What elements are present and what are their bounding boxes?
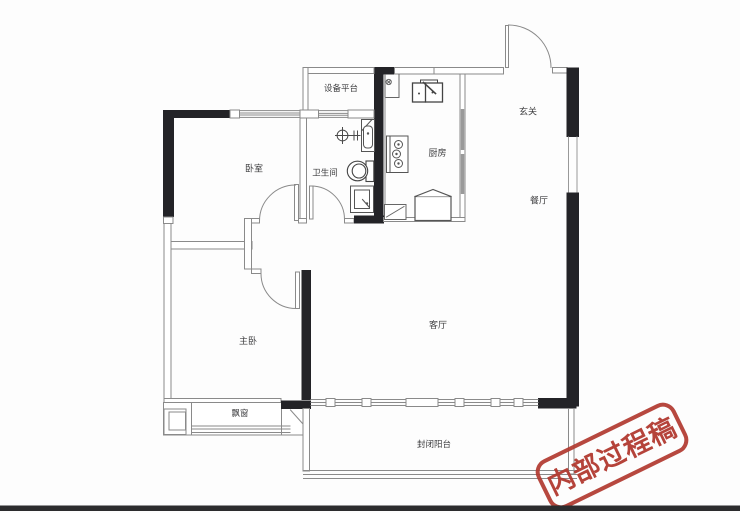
svg-text:卫生间: 卫生间 <box>312 168 338 178</box>
svg-text:玄关: 玄关 <box>519 106 537 117</box>
svg-text:封闭阳台: 封闭阳台 <box>417 439 451 449</box>
svg-text:内部过程稿: 内部过程稿 <box>542 411 681 500</box>
svg-text:餐厅: 餐厅 <box>530 195 548 206</box>
svg-text:飘窗: 飘窗 <box>231 408 248 418</box>
svg-text:设备平台: 设备平台 <box>324 83 358 93</box>
svg-text:主卧: 主卧 <box>239 335 257 346</box>
svg-text:客厅: 客厅 <box>429 319 447 330</box>
svg-text:卧室: 卧室 <box>245 163 263 174</box>
svg-text:厨房: 厨房 <box>428 147 446 158</box>
